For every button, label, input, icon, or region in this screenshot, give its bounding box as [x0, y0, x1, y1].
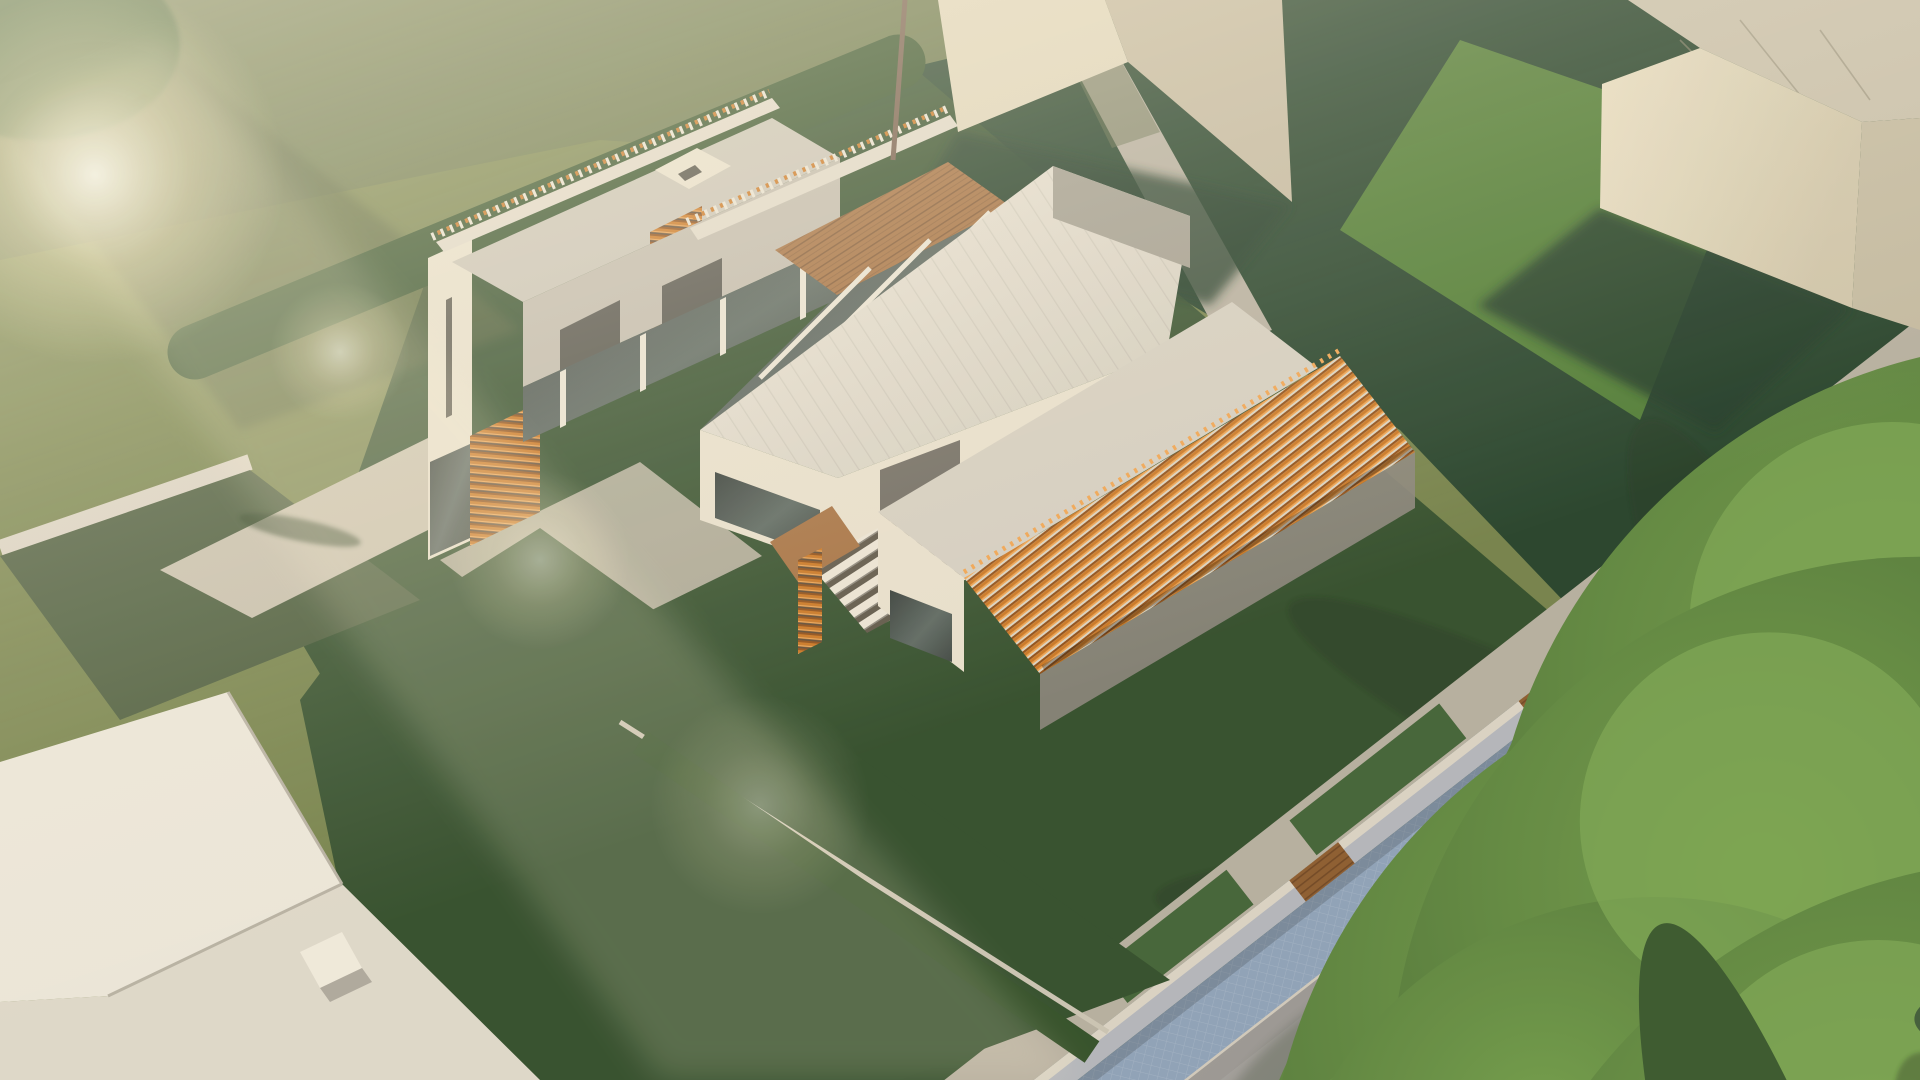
- warm-tint: [0, 0, 1920, 1080]
- render-canvas: [0, 0, 1920, 1080]
- aerial-architectural-render: [0, 0, 1920, 1080]
- atmosphere: [0, 0, 1920, 1080]
